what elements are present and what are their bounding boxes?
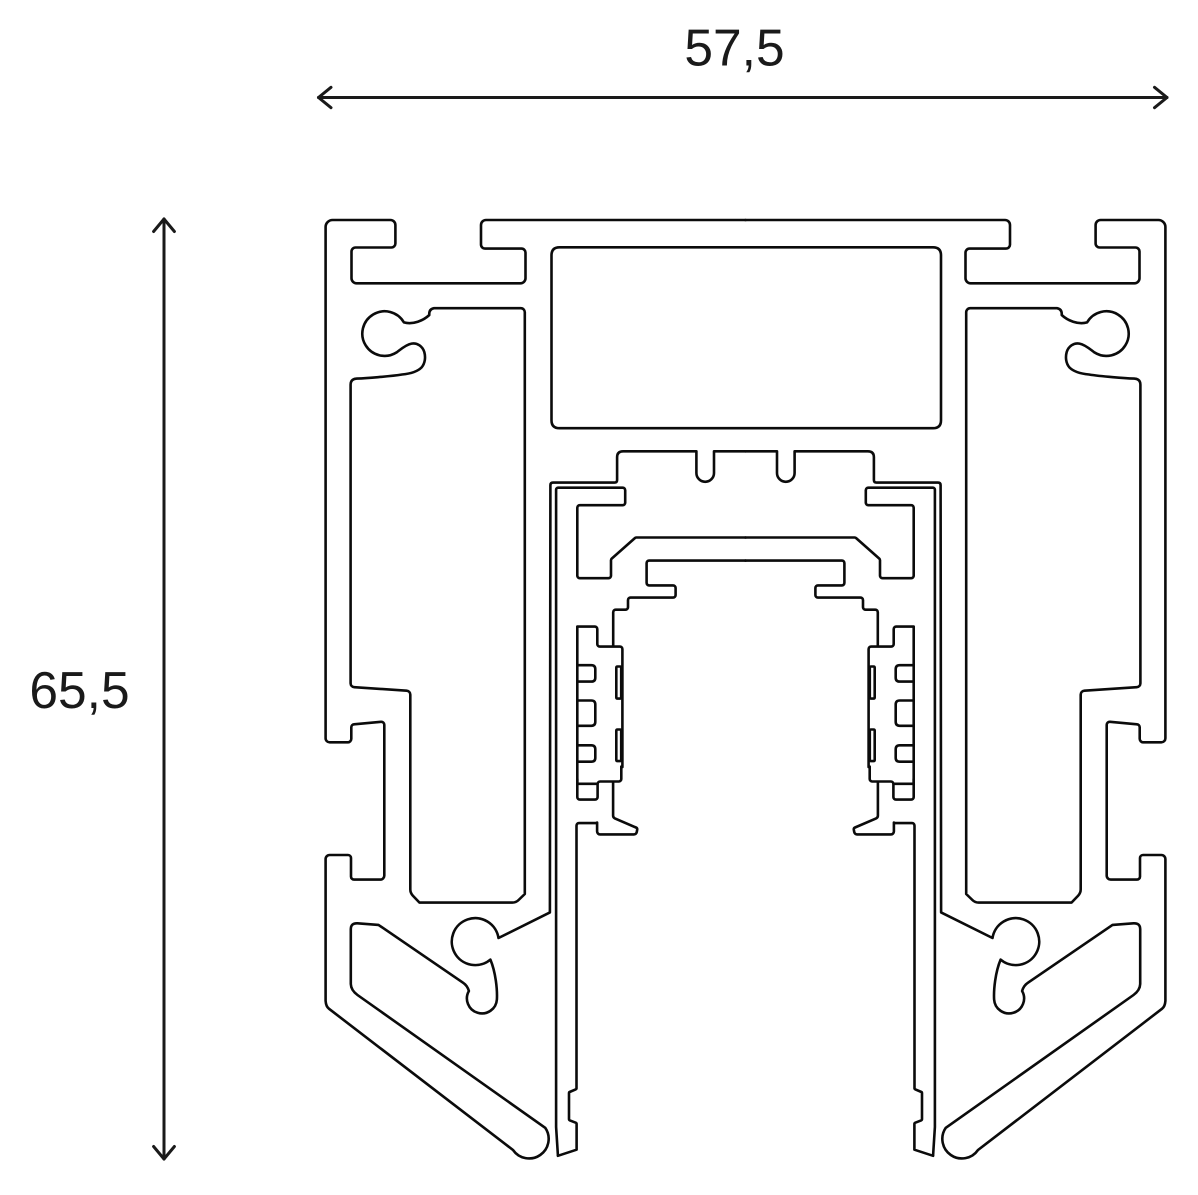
svg-text:65,5: 65,5	[29, 661, 129, 719]
svg-text:57,5: 57,5	[684, 19, 784, 77]
